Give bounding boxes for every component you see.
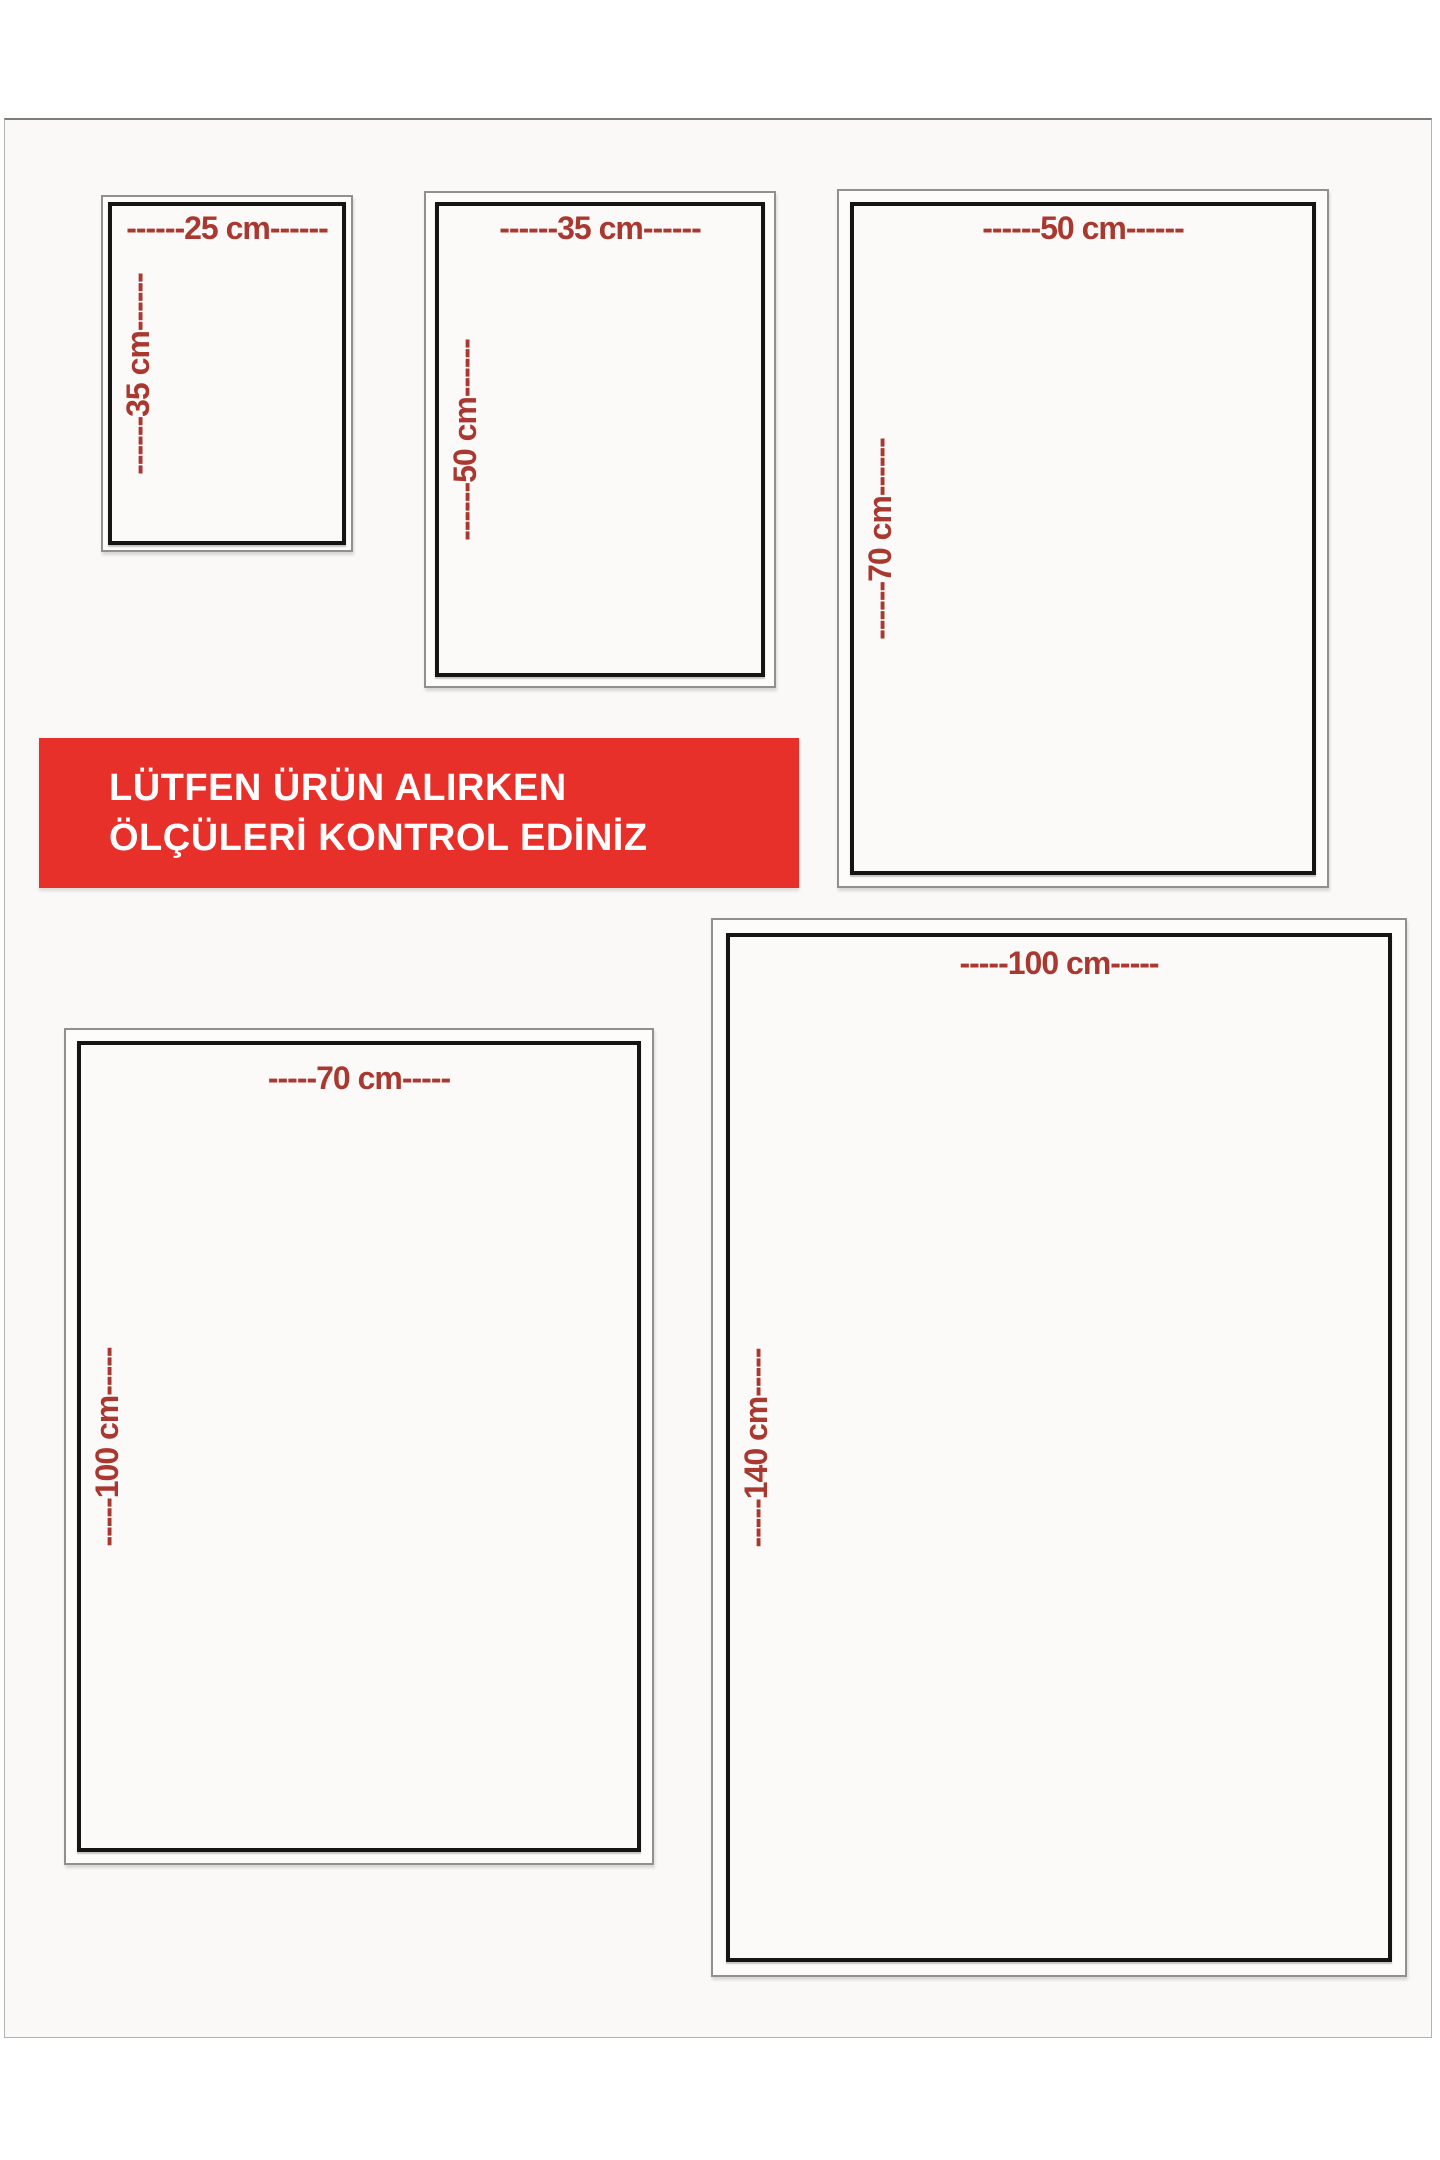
size-box-50x70-inner: ------50 cm------ ------70 cm------	[850, 202, 1316, 875]
size-guide-page: { "page": { "background_color": "#ffffff…	[0, 0, 1440, 2160]
notice-banner-line-1: LÜTFEN ÜRÜN ALIRKEN	[109, 768, 799, 808]
notice-banner: LÜTFEN ÜRÜN ALIRKEN ÖLÇÜLERİ KONTROL EDİ…	[39, 738, 799, 888]
size-box-100x140: -----100 cm----- -----140 cm-----	[711, 918, 1407, 1977]
size-box-70x100-inner: -----70 cm----- -----100 cm-----	[77, 1041, 641, 1852]
notice-banner-line-2: ÖLÇÜLERİ KONTROL EDİNİZ	[109, 818, 799, 858]
size-box-35x50-inner: ------35 cm------ ------50 cm------	[435, 202, 765, 677]
size-box-100x140-inner: -----100 cm----- -----140 cm-----	[726, 933, 1392, 1962]
size-box-35x50: ------35 cm------ ------50 cm------	[424, 191, 776, 688]
width-dimension-label-25cm: ------25 cm------	[112, 210, 342, 247]
size-box-25x35: ------25 cm------ ------35 cm------	[101, 195, 353, 552]
height-dimension-label-70cm: ------70 cm------	[862, 438, 899, 640]
width-dimension-label-100cm: -----100 cm-----	[730, 945, 1388, 982]
width-dimension-label-35cm: ------35 cm------	[439, 210, 761, 247]
size-box-70x100: -----70 cm----- -----100 cm-----	[64, 1028, 654, 1865]
height-dimension-label-35cm: ------35 cm------	[120, 273, 157, 475]
height-dimension-label-100cm: -----100 cm-----	[89, 1347, 126, 1546]
height-dimension-label-50cm: ------50 cm------	[447, 339, 484, 541]
height-dimension-label-140cm: -----140 cm-----	[738, 1348, 775, 1547]
size-box-25x35-inner: ------25 cm------ ------35 cm------	[108, 202, 346, 545]
size-box-50x70: ------50 cm------ ------70 cm------	[837, 189, 1329, 888]
width-dimension-label-70cm: -----70 cm-----	[81, 1060, 637, 1097]
width-dimension-label-50cm: ------50 cm------	[854, 210, 1312, 247]
